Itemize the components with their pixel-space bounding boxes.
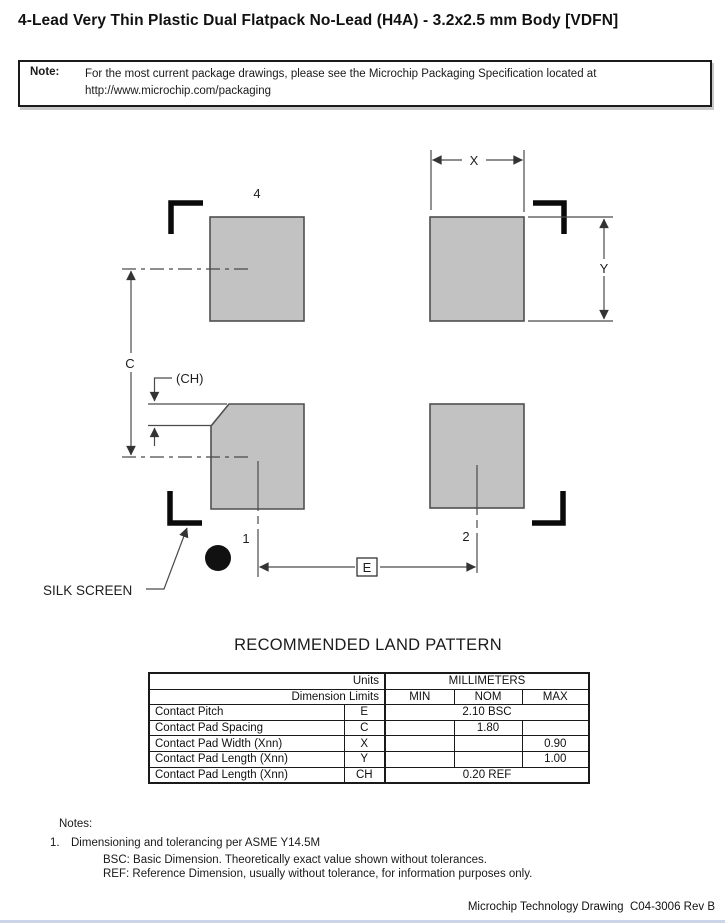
document-footer: Microchip Technology Drawing C04-3006 Re… [468, 901, 715, 913]
dimension-max: 0.90 [522, 736, 589, 752]
dimension-min [385, 751, 454, 767]
note-item-number: 1. [50, 837, 71, 849]
dim-ch-label: (CH) [176, 371, 203, 386]
col-nom: NOM [454, 689, 522, 705]
dimension-max [522, 720, 589, 736]
silk-screen-label: SILK SCREEN [43, 583, 132, 598]
dimension-limits-label: Dimension Limits [149, 689, 385, 705]
units-label: Units [149, 673, 385, 689]
dimension-name: Contact Pad Length (Xnn) [149, 767, 344, 783]
bracket-bottom-left [170, 491, 202, 523]
table-row: Contact Pad Length (Xnn)CH0.20 REF [149, 767, 589, 783]
units-value: MILLIMETERS [385, 673, 589, 689]
dim-e-label: E [363, 560, 372, 575]
dimension-symbol: X [344, 736, 385, 752]
dimension-nom: 1.80 [454, 720, 522, 736]
note-sub-ref: REF: Reference Dimension, usually withou… [103, 868, 532, 882]
land-pattern-table: Units MILLIMETERS Dimension Limits MIN N… [148, 672, 590, 784]
dimension-symbol: Y [344, 751, 385, 767]
bracket-top-right [533, 203, 564, 234]
col-max: MAX [522, 689, 589, 705]
dimension-nom [454, 736, 522, 752]
dimension-name: Contact Pitch [149, 705, 344, 721]
bracket-bottom-right [532, 491, 563, 523]
table-header-limits: Dimension Limits MIN NOM MAX [149, 689, 589, 705]
table-row: Contact PitchE2.10 BSC [149, 705, 589, 721]
dimension-name: Contact Pad Length (Xnn) [149, 751, 344, 767]
note-sub-bsc: BSC: Basic Dimension. Theoretically exac… [103, 854, 532, 868]
table-row: Contact Pad Length (Xnn)Y1.00 [149, 751, 589, 767]
package-drawing: 4 X Y C (CH) E 1 2 SILK SCREEN [0, 0, 725, 620]
dimension-name: Contact Pad Spacing [149, 720, 344, 736]
pin-4-label: 4 [253, 186, 260, 201]
col-min: MIN [385, 689, 454, 705]
table-row: Contact Pad SpacingC1.80 [149, 720, 589, 736]
dimension-value-span: 0.20 REF [385, 767, 589, 783]
pin-1-label: 1 [242, 531, 249, 546]
table-row: Contact Pad Width (Xnn)X0.90 [149, 736, 589, 752]
dimension-min [385, 736, 454, 752]
silk-screen-dot [205, 545, 231, 571]
dimension-symbol: E [344, 705, 385, 721]
dimension-min [385, 720, 454, 736]
dimension-name: Contact Pad Width (Xnn) [149, 736, 344, 752]
dim-y-label: Y [600, 261, 609, 276]
pin-2-label: 2 [462, 529, 469, 544]
dim-x-label: X [470, 153, 479, 168]
dimension-value-span: 2.10 BSC [385, 705, 589, 721]
note-item-1: 1.Dimensioning and tolerancing per ASME … [50, 837, 320, 849]
dimension-max: 1.00 [522, 751, 589, 767]
notes-sub-items: BSC: Basic Dimension. Theoretically exac… [103, 854, 532, 881]
dimension-symbol: C [344, 720, 385, 736]
dim-c-label: C [125, 356, 134, 371]
table-header-units: Units MILLIMETERS [149, 673, 589, 689]
notes-heading: Notes: [59, 818, 92, 830]
note-item-text: Dimensioning and tolerancing per ASME Y1… [71, 837, 320, 849]
pad-4 [210, 217, 304, 321]
pad-top-right [430, 217, 524, 321]
bracket-top-left [171, 203, 203, 234]
dimension-symbol: CH [344, 767, 385, 783]
label-backgrounds [119, 152, 614, 372]
dimension-nom [454, 751, 522, 767]
land-pattern-heading: RECOMMENDED LAND PATTERN [148, 636, 588, 655]
